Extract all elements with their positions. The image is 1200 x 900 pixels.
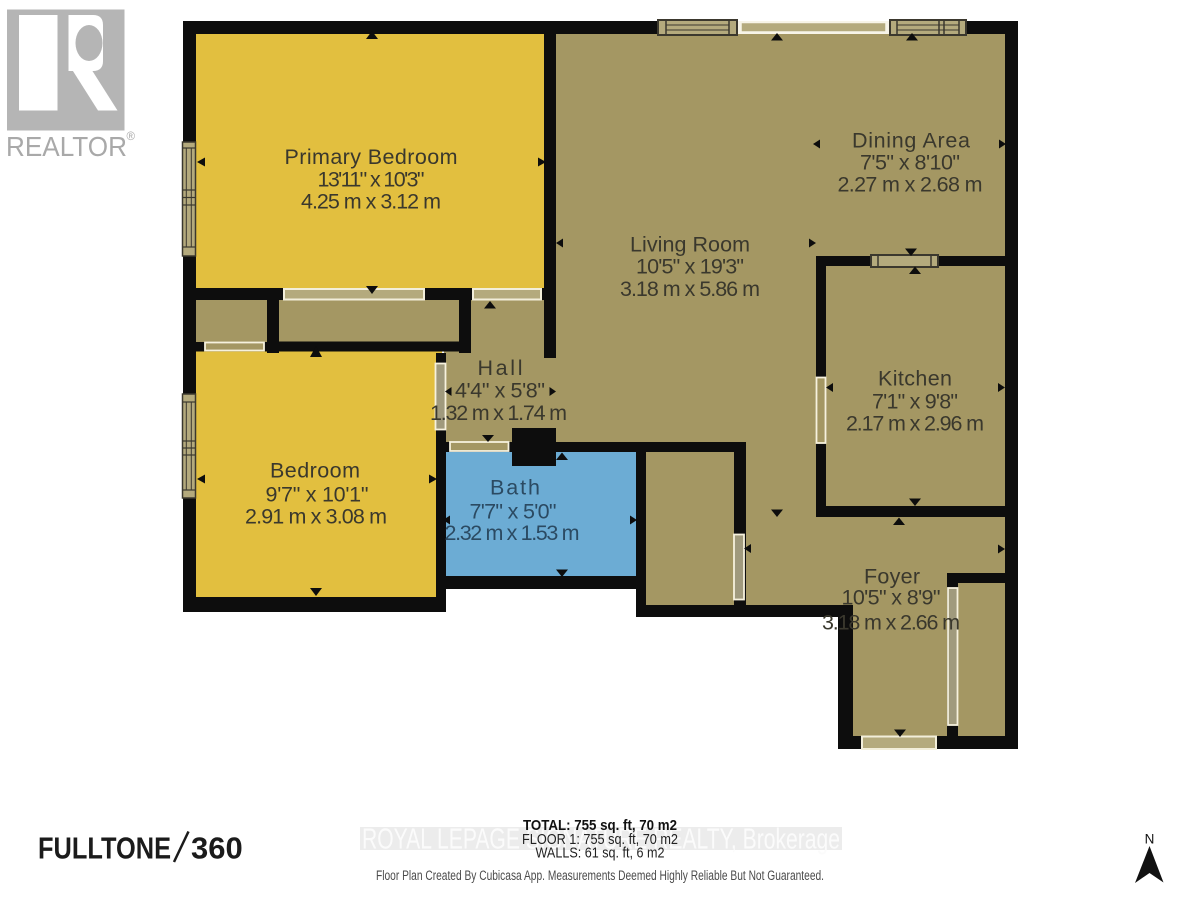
svg-text:2.32 m x 1.53 m: 2.32 m x 1.53 m [445,521,580,545]
svg-text:Dining Area: Dining Area [852,129,970,153]
svg-text:3.18 m x 5.86 m: 3.18 m x 5.86 m [620,277,760,301]
svg-text:Living Room: Living Room [630,233,750,257]
svg-text:Bath: Bath [490,476,540,500]
svg-text:2.27 m x 2.68 m: 2.27 m x 2.68 m [838,173,983,197]
svg-text:10'5" x 19'3": 10'5" x 19'3" [636,255,744,279]
svg-text:REALTOR: REALTOR [6,131,127,162]
svg-text:Primary Bedroom: Primary Bedroom [285,145,458,169]
svg-text:7'7" x 5'0": 7'7" x 5'0" [470,500,557,524]
svg-text:7'1" x 9'8": 7'1" x 9'8" [872,390,958,414]
svg-text:360: 360 [191,831,243,866]
svg-text:13'11" x 10'3": 13'11" x 10'3" [318,168,425,192]
svg-text:4'4" x 5'8": 4'4" x 5'8" [455,379,545,403]
svg-text:2.91 m x 3.08 m: 2.91 m x 3.08 m [245,505,387,529]
svg-text:FULLTONE: FULLTONE [38,831,171,866]
svg-text:4.25 m x 3.12 m: 4.25 m x 3.12 m [301,190,441,214]
svg-text:Kitchen: Kitchen [878,367,952,391]
svg-text:N: N [1145,832,1155,847]
svg-text:1.32 m x 1.74 m: 1.32 m x 1.74 m [430,401,567,425]
svg-text:9'7" x 10'1": 9'7" x 10'1" [266,483,369,507]
svg-text:Floor Plan Created By Cubicasa: Floor Plan Created By Cubicasa App. Meas… [376,868,824,883]
svg-text:®: ® [127,131,136,143]
svg-text:2.17 m x 2.96 m: 2.17 m x 2.96 m [846,412,984,436]
svg-text:10'5" x 8'9": 10'5" x 8'9" [842,586,941,610]
svg-text:3.18 m x 2.66 m: 3.18 m x 2.66 m [822,611,960,635]
svg-text:7'5" x 8'10": 7'5" x 8'10" [860,151,960,175]
svg-text:Bedroom: Bedroom [270,459,360,483]
svg-text:WALLS: 61 sq. ft, 6 m2: WALLS: 61 sq. ft, 6 m2 [536,845,665,862]
